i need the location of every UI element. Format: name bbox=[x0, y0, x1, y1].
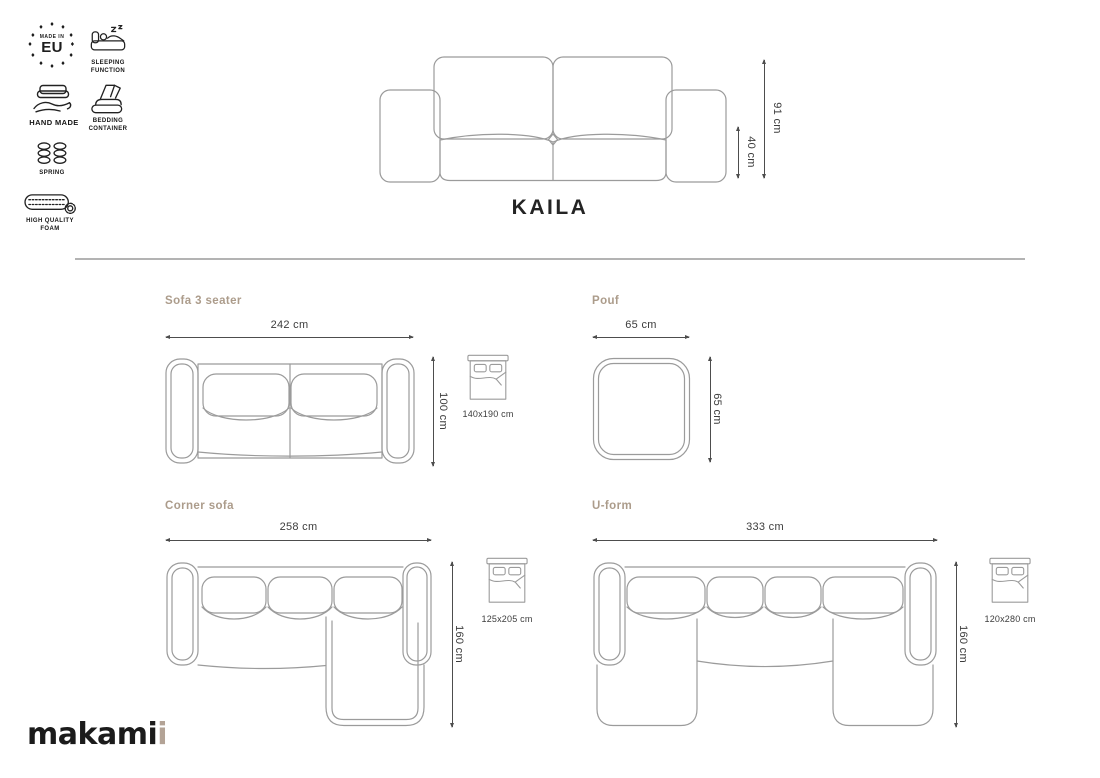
section-title-pouf: Pouf bbox=[592, 295, 619, 307]
section-title-u-form: U-form bbox=[592, 500, 632, 512]
hand-made-icon bbox=[30, 84, 76, 116]
sofa3-bed-size: 140x190 cm bbox=[448, 409, 528, 419]
dimension-arrow-seat-height bbox=[738, 127, 739, 178]
sofa-front-view-drawing bbox=[378, 52, 728, 185]
divider bbox=[75, 258, 1025, 260]
sleeping-function-label: SLEEPING FUNCTION bbox=[79, 60, 137, 75]
section-title-corner-sofa: Corner sofa bbox=[165, 500, 234, 512]
high-quality-foam-label: HIGH QUALITY FOAM bbox=[17, 218, 83, 233]
sleeping-function-icon bbox=[90, 24, 126, 56]
corner-sofa-top-view bbox=[166, 561, 432, 728]
pouf-depth-value: 65 cm bbox=[711, 379, 723, 439]
corner-width-arrow bbox=[166, 540, 431, 541]
brand-logo-accent: i bbox=[157, 717, 167, 752]
total-height-value: 91 cm bbox=[771, 98, 783, 138]
spring-label: SPRING bbox=[28, 170, 76, 178]
bedding-container-icon bbox=[90, 82, 124, 116]
sofa3-bed-icon bbox=[467, 353, 509, 407]
product-title: KAILA bbox=[450, 196, 650, 220]
corner-depth-value: 160 cm bbox=[453, 614, 465, 674]
made-in-eu-badge: MADE IN EU bbox=[28, 20, 76, 68]
sofa-3-seater-top-view bbox=[165, 356, 415, 466]
corner-bed-size: 125x205 cm bbox=[467, 614, 547, 624]
sofa3-depth-arrow bbox=[433, 357, 434, 466]
pouf-width-arrow bbox=[593, 337, 689, 338]
sofa3-width-arrow bbox=[166, 337, 413, 338]
sofa3-width-value: 242 cm bbox=[166, 319, 413, 331]
dimension-arrow-total-height bbox=[764, 60, 765, 178]
high-quality-foam-icon bbox=[24, 192, 78, 217]
uform-width-arrow bbox=[593, 540, 937, 541]
corner-width-value: 258 cm bbox=[166, 521, 431, 533]
uform-width-value: 333 cm bbox=[593, 521, 937, 533]
uform-bed-size: 120x280 cm bbox=[970, 614, 1050, 624]
eu-label: EU bbox=[28, 39, 76, 56]
bedding-container-label: BEDDING CONTAINER bbox=[79, 118, 137, 133]
u-form-top-view bbox=[593, 561, 937, 728]
pouf-top-view bbox=[592, 357, 691, 461]
brand-logo-main: makami bbox=[27, 717, 157, 752]
spring-icon bbox=[36, 141, 68, 169]
hand-made-label: HAND MADE bbox=[28, 118, 80, 127]
uform-depth-value: 160 cm bbox=[957, 614, 969, 674]
uform-bed-icon bbox=[989, 556, 1031, 610]
corner-bed-icon bbox=[486, 556, 528, 610]
brand-logo: makamii bbox=[27, 717, 167, 752]
section-title-sofa-3-seater: Sofa 3 seater bbox=[165, 295, 242, 307]
seat-height-value: 40 cm bbox=[745, 132, 757, 172]
pouf-width-value: 65 cm bbox=[593, 319, 689, 331]
spec-sheet: MADE IN EU SLEEPING FUNCTION HAND MADE B… bbox=[0, 0, 1100, 778]
